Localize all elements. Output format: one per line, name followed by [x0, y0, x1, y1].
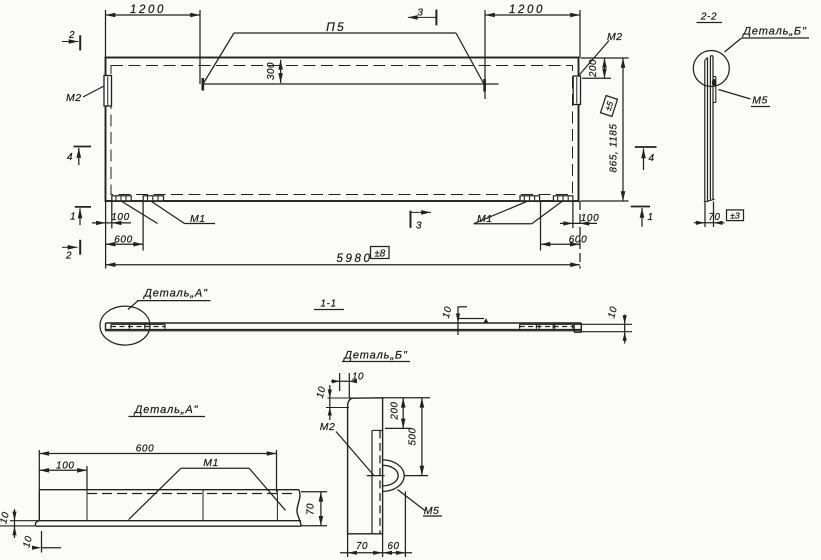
svg-text:10: 10	[441, 305, 455, 319]
svg-text:1: 1	[70, 212, 76, 223]
svg-text:М2: М2	[320, 421, 336, 433]
svg-text:600: 600	[136, 444, 155, 455]
svg-text:70: 70	[306, 503, 317, 515]
svg-text:1200: 1200	[130, 4, 166, 16]
svg-text:2: 2	[68, 30, 75, 41]
svg-text:4: 4	[67, 152, 73, 163]
svg-text:3: 3	[417, 8, 423, 19]
svg-text:Деталь„Б": Деталь„Б"	[741, 26, 807, 38]
svg-text:100: 100	[56, 461, 75, 472]
svg-text:4: 4	[649, 153, 655, 164]
svg-text:5980: 5980	[337, 253, 373, 265]
svg-text:100: 100	[111, 212, 130, 223]
svg-text:1-1: 1-1	[320, 299, 336, 310]
svg-text:М2: М2	[607, 31, 623, 43]
svg-text:100: 100	[581, 213, 600, 224]
svg-text:М5: М5	[424, 505, 440, 517]
svg-text:70: 70	[356, 541, 368, 552]
svg-text:200: 200	[588, 59, 599, 78]
svg-text:10: 10	[352, 372, 364, 383]
svg-text:Деталь„Б": Деталь„Б"	[342, 350, 408, 362]
svg-text:Деталь„А": Деталь„А"	[133, 404, 199, 416]
svg-text:10: 10	[606, 305, 620, 319]
svg-text:10: 10	[315, 385, 329, 399]
svg-text:10: 10	[0, 511, 12, 525]
svg-text:М1: М1	[190, 213, 206, 225]
svg-text:±8: ±8	[374, 249, 385, 260]
svg-text:М1: М1	[477, 213, 493, 225]
svg-text:1: 1	[648, 212, 654, 223]
svg-text:600: 600	[569, 235, 588, 246]
svg-text:2: 2	[65, 251, 72, 262]
svg-text:500: 500	[408, 428, 419, 446]
svg-text:М2: М2	[66, 92, 82, 104]
svg-text:200: 200	[390, 402, 401, 421]
svg-text:60: 60	[388, 541, 400, 552]
svg-text:865, 1185: 865, 1185	[609, 123, 620, 172]
svg-text:М1: М1	[203, 457, 219, 469]
svg-text:1200: 1200	[509, 4, 545, 16]
svg-text:3: 3	[416, 221, 422, 232]
svg-text:2-2: 2-2	[700, 12, 717, 23]
svg-text:Деталь„А": Деталь„А"	[142, 288, 208, 300]
svg-text:300: 300	[266, 62, 277, 80]
svg-text:70: 70	[709, 212, 721, 223]
svg-text:М5: М5	[752, 95, 768, 107]
svg-text:П5: П5	[326, 20, 346, 34]
svg-text:±3: ±3	[730, 210, 740, 220]
svg-text:600: 600	[114, 235, 133, 246]
